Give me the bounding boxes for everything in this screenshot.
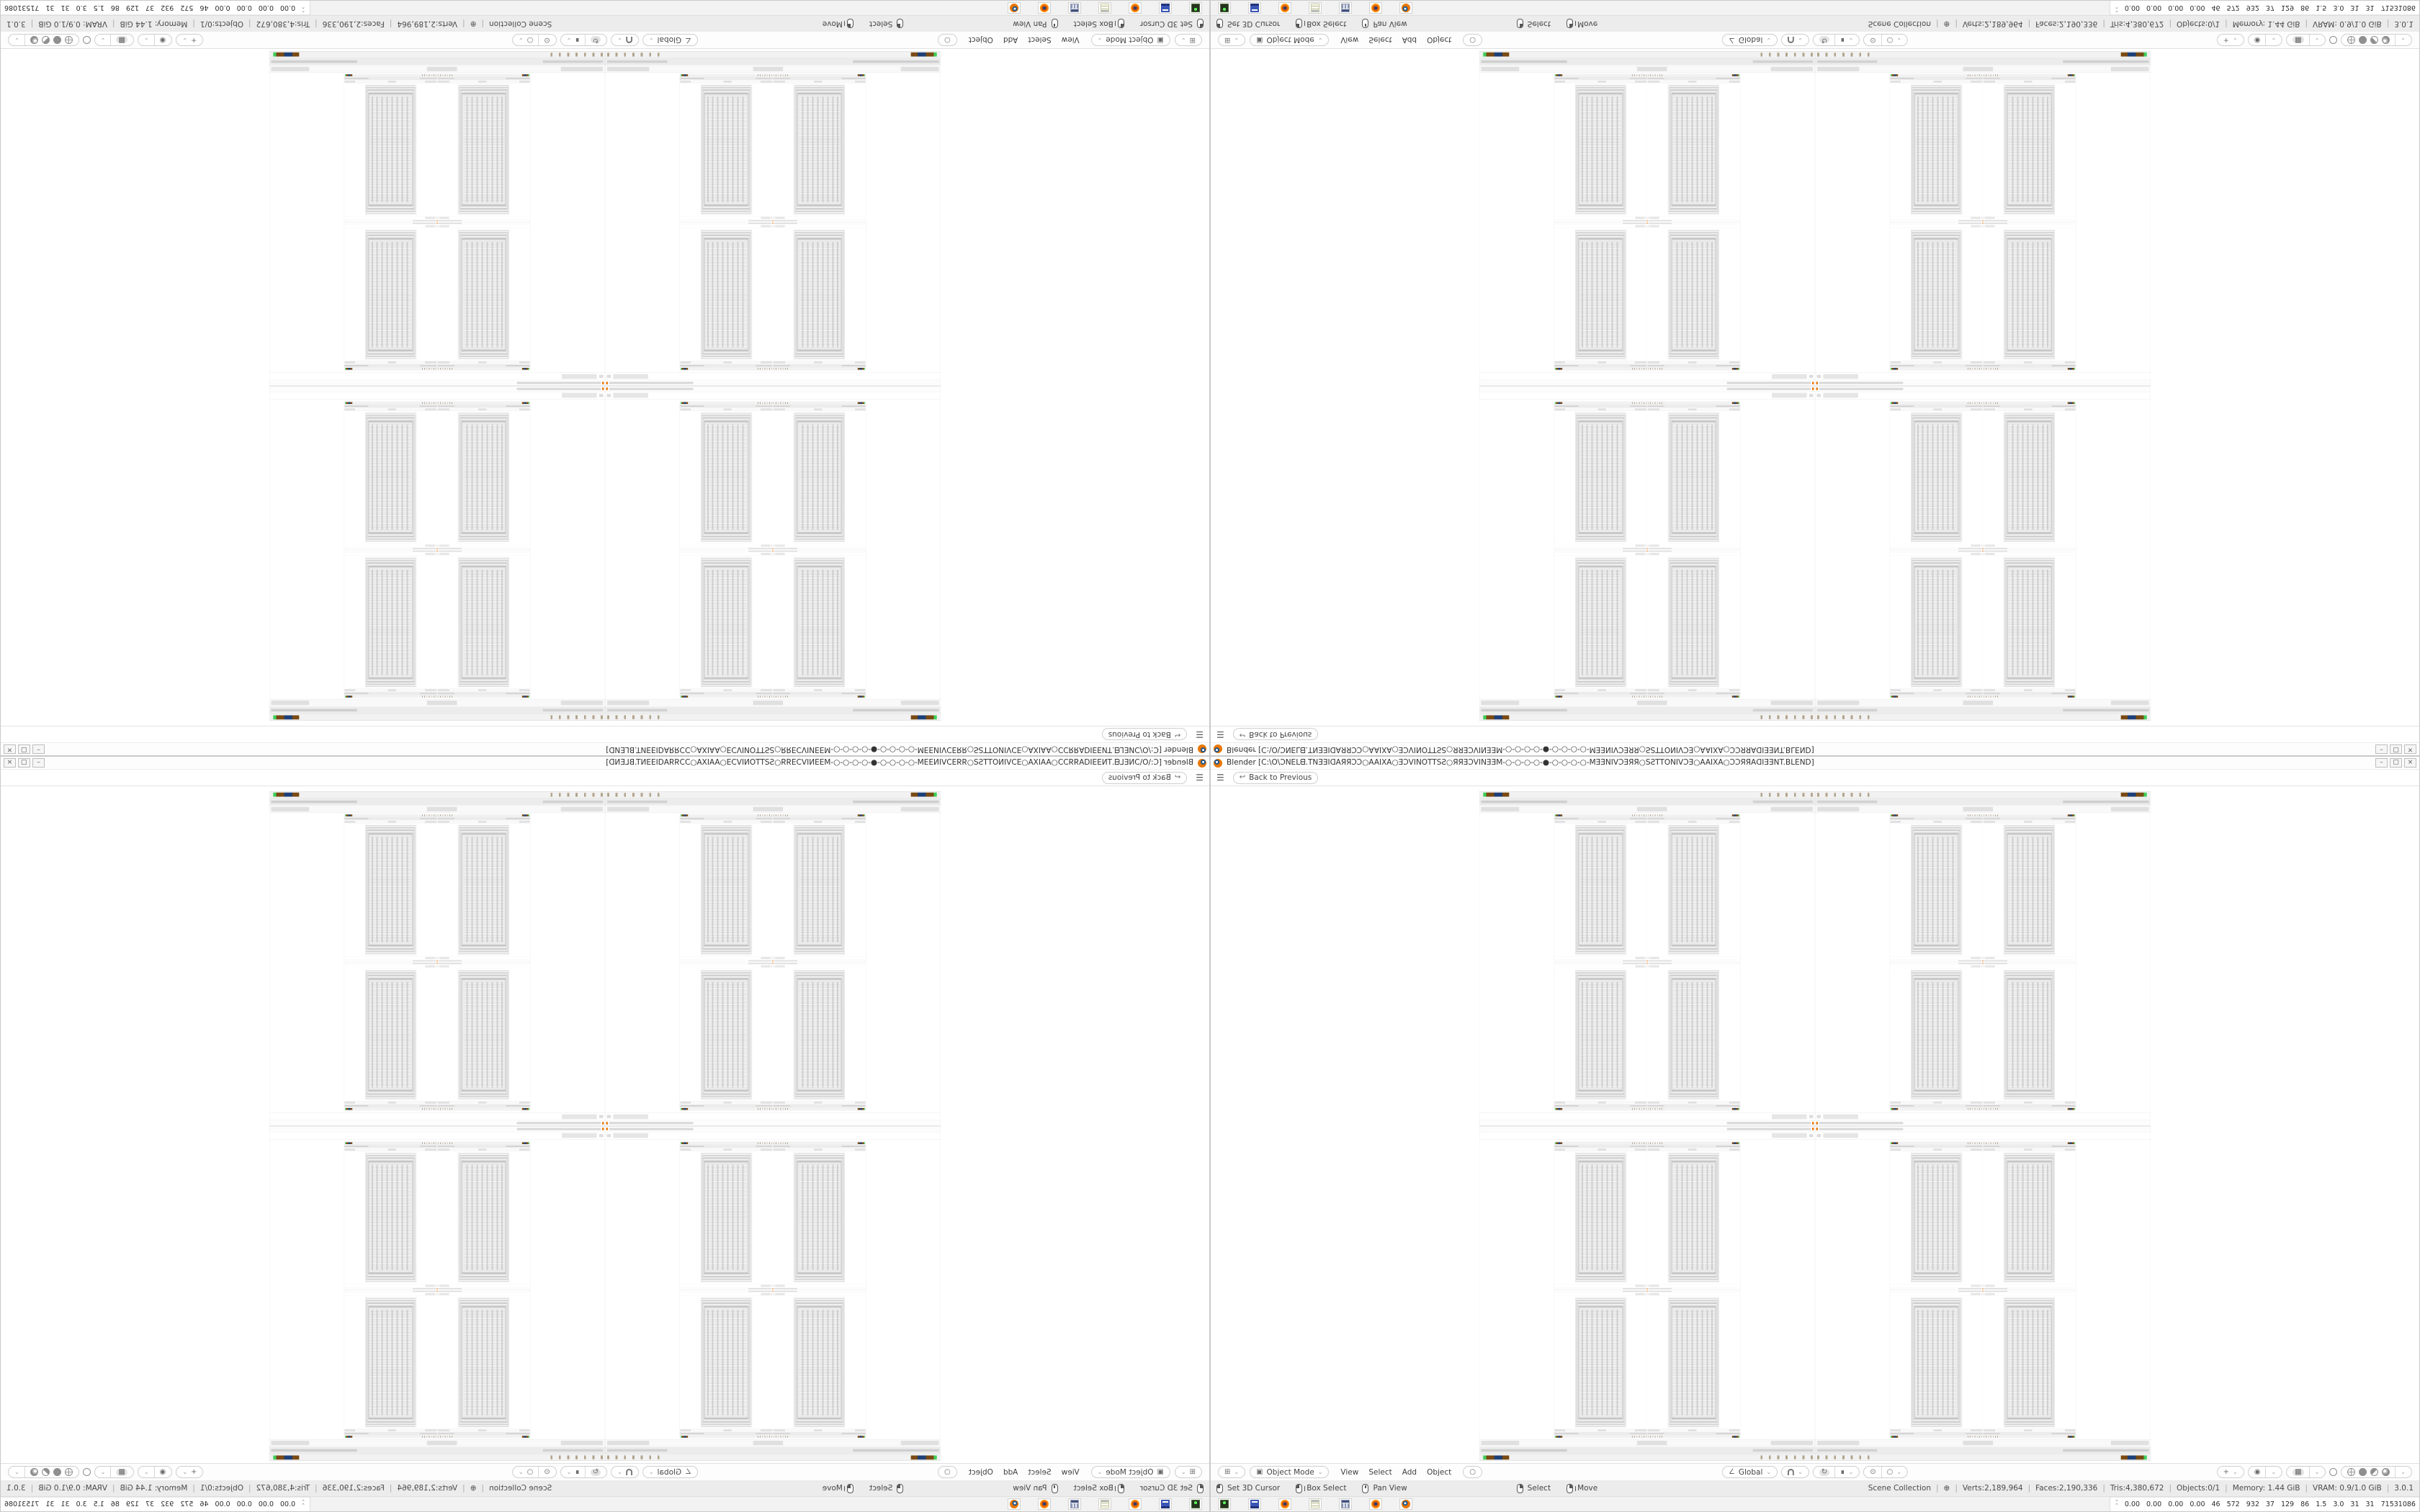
- nested-status-bar: [1479, 707, 1814, 714]
- menu-select[interactable]: Select: [1368, 36, 1391, 45]
- nested-screen: [1647, 402, 1740, 550]
- nested-title-bar: [1647, 960, 1740, 963]
- editor-type-button[interactable]: ⊞ ⌄: [1218, 34, 1245, 46]
- nested-viewport: [680, 556, 773, 688]
- shading-mode-group[interactable]: ⌄: [8, 34, 79, 46]
- viewport-image: [701, 1152, 753, 1283]
- menu-add[interactable]: Add: [1402, 36, 1417, 45]
- chevron-down-icon: ⌄: [144, 37, 149, 43]
- chevron-down-icon: ⌄: [2233, 1469, 2238, 1475]
- taskbar-icon-system-monitor[interactable]: [1189, 2, 1202, 14]
- chevron-down-icon: ⌄: [1798, 37, 1803, 43]
- shading-material-icon[interactable]: [42, 1468, 50, 1476]
- nested-screen: [773, 962, 866, 1110]
- nested-title-bar: [269, 380, 604, 386]
- scale-wrapper: [1554, 1290, 1647, 1439]
- nested-cell-tr: [1983, 962, 2076, 1110]
- overlays-toggle-button[interactable]: ◉ ⌄: [2248, 34, 2282, 46]
- mirror-wrapper: [773, 814, 866, 962]
- stat-value: 0.00: [2190, 1500, 2205, 1508]
- taskbar-icon-firefox[interactable]: [1129, 2, 1142, 14]
- xray-toggle-button[interactable]: ▩ ⌄: [2286, 34, 2326, 46]
- status-hint: Move: [1567, 19, 1597, 29]
- mode-dropdown[interactable]: ▣ Object Mode ⌄: [1250, 1466, 1329, 1478]
- taskbar-icon-commodore-64[interactable]: [1248, 2, 1261, 14]
- proportional-editing-button[interactable]: ⊙ ○ ⌄: [512, 1466, 557, 1478]
- rendered-preview-circle-icon[interactable]: [2329, 1468, 2337, 1476]
- viewport-header-center: ∠ Global ⌄ ⌄ ↻ ∎ ⌄ ⊙ ○: [1722, 34, 1908, 46]
- mouse-left-drag-icon: [1296, 1484, 1302, 1493]
- shading-mode-group[interactable]: ⌄: [8, 1466, 79, 1478]
- stat-value: 932: [2246, 1500, 2259, 1508]
- snap-target-button[interactable]: ⌄: [1781, 34, 1809, 46]
- stat-value: 71531086: [2381, 1500, 2416, 1508]
- nested-cell-tl: [437, 222, 530, 370]
- stat-value: 572: [2227, 1500, 2240, 1508]
- taskbar-icon-firefox[interactable]: [1369, 2, 1382, 14]
- nested-title-bar: [773, 960, 866, 963]
- scale-wrapper: [1647, 814, 1740, 962]
- snap-toggle-button[interactable]: ↻ ∎ ⌄: [560, 34, 607, 46]
- nested-top-bar: [1890, 544, 1983, 547]
- mirror-wrapper: [344, 1142, 437, 1290]
- gizmo-toggle-button[interactable]: + ⌄: [2217, 1466, 2244, 1478]
- nested-screen: [269, 1126, 605, 1461]
- viewport-image: [680, 402, 866, 698]
- nested-taskbar: [269, 714, 604, 720]
- restore-button[interactable]: ▢: [18, 758, 30, 768]
- menu-view[interactable]: View: [1062, 36, 1080, 45]
- viewport-image: [1668, 557, 1720, 688]
- shading-rendered-icon[interactable]: [2382, 36, 2390, 44]
- mode-dropdown[interactable]: ▣ Object Mode ⌄: [1091, 34, 1170, 46]
- mirror-wrapper: [680, 222, 773, 370]
- back-to-previous-button[interactable]: ↩ Back to Previous: [1102, 772, 1187, 784]
- gizmo-toggle-button[interactable]: + ⌄: [176, 1466, 203, 1478]
- transform-orientation-dropdown[interactable]: ∠ Global ⌄: [1722, 34, 1778, 46]
- snap-target-button[interactable]: ⌄: [1781, 1466, 1809, 1478]
- nested-status-bar: [344, 817, 437, 820]
- gizmo-toggle-button[interactable]: + ⌄: [2217, 34, 2244, 46]
- status-hint: Move: [823, 1484, 853, 1493]
- taskbar-icon-calculator[interactable]: [1068, 2, 1081, 14]
- transform-orientation-dropdown[interactable]: ∠ Global ⌄: [642, 34, 698, 46]
- taskbar-icon-notepad[interactable]: [1309, 2, 1322, 14]
- snap-target-button[interactable]: ⌄: [611, 34, 639, 46]
- blender-window: Blender [C:\O\ƆNEᒪᗺ.TNƎƎIᗡAЯЯƆƆ○AAIXA○ƎƆ…: [0, 756, 1210, 1512]
- scene-stat-item: 3.0.1: [2394, 1484, 2414, 1493]
- viewport-header-right: + ⌄ ◉ ⌄ ▩ ⌄: [2217, 1466, 2412, 1478]
- close-button[interactable]: ×: [2404, 758, 2416, 768]
- mirror-wrapper: [680, 73, 773, 222]
- shading-material-icon[interactable]: [2370, 1468, 2378, 1476]
- taskbar-icon-system-monitor[interactable]: [1189, 1498, 1202, 1510]
- viewport-image: [1575, 969, 1627, 1100]
- window-controls: – ▢ ×: [4, 758, 45, 768]
- viewport-image: [1668, 412, 1720, 543]
- mouse-right-drag-icon: [1567, 19, 1573, 29]
- chevron-down-icon: ⌄: [2271, 1469, 2276, 1475]
- scale-wrapper: [437, 1290, 530, 1439]
- nested-viewport: [437, 968, 530, 1101]
- snap-target-button[interactable]: ⌄: [611, 1466, 639, 1478]
- system-stats-widget: ⌃ ⌃ 0.000.000.000.004657293237129861.53.…: [2110, 1, 2419, 15]
- nested-taskbar: [1890, 367, 1983, 370]
- magnet-icon: [626, 37, 632, 43]
- editor-type-button[interactable]: ⊞ ⌄: [1218, 1466, 1245, 1478]
- viewport-image: [344, 814, 531, 1110]
- taskbar-icon-calculator[interactable]: [1339, 1498, 1352, 1510]
- mirror-wrapper: [437, 814, 530, 962]
- shading-solid-icon[interactable]: [2359, 36, 2367, 44]
- taskbar-icon-blender[interactable]: [1008, 2, 1021, 14]
- snap-pin-icon: ∎: [575, 37, 579, 44]
- nested-top-bar: [1815, 1112, 2150, 1120]
- system-monitor-icon: [1191, 4, 1200, 12]
- scale-wrapper: [1554, 402, 1647, 550]
- nested-status-bar: [437, 405, 530, 408]
- proportional-editing-button[interactable]: ⊙ ○ ⌄: [512, 34, 557, 46]
- nested-taskbar: [344, 1142, 437, 1145]
- nested-top-bar: [1647, 544, 1740, 547]
- nested-taskbar: [1647, 695, 1740, 698]
- nested-viewport: [1647, 968, 1740, 1101]
- viewport-image: [794, 229, 846, 360]
- menu-icon[interactable]: ☰: [1216, 773, 1224, 783]
- nested-viewport: [1890, 556, 1983, 688]
- menu-view[interactable]: View: [1340, 36, 1358, 45]
- menu-add[interactable]: Add: [1003, 1468, 1018, 1477]
- menu-select[interactable]: Select: [1368, 1468, 1391, 1477]
- restore-button[interactable]: ▢: [18, 744, 30, 754]
- back-to-previous-button[interactable]: ↩ Back to Previous: [1233, 729, 1318, 741]
- nested-top-bar: [437, 544, 530, 547]
- viewport-image: [2004, 229, 2056, 360]
- nested-status-bar: [605, 798, 940, 806]
- snap-toggle-button[interactable]: ↻ ∎ ⌄: [1813, 1466, 1860, 1478]
- scene-statistics: Scene Collection|⊕|Verts:2,189,964|Faces…: [6, 1484, 552, 1493]
- keymap-hints: Set 3D CursorBox SelectPan ViewSelectMov…: [823, 19, 1204, 29]
- shading-solid-icon[interactable]: [53, 36, 61, 44]
- tool-circle-button[interactable]: ○: [938, 1466, 957, 1478]
- overlays-toggle-button[interactable]: ◉ ⌄: [138, 1466, 172, 1478]
- nested-cell-tr: [773, 222, 866, 370]
- nested-viewport: [773, 1296, 866, 1428]
- stat-value: 37: [2266, 4, 2275, 12]
- transform-orientation-dropdown[interactable]: ∠ Global ⌄: [1722, 1466, 1778, 1478]
- scroll-up-icon[interactable]: ⌃ ⌃: [2115, 1500, 2119, 1508]
- taskbar-icon-calculator[interactable]: [1068, 1498, 1081, 1510]
- nested-status-bar: [1479, 58, 1814, 66]
- shading-wireframe-icon[interactable]: [65, 36, 73, 44]
- chevron-down-icon: ⌄: [1318, 37, 1323, 43]
- shading-rendered-icon[interactable]: [30, 36, 38, 44]
- divider: [154, 35, 155, 45]
- scale-wrapper: [773, 73, 866, 222]
- notepad-icon: [1311, 1500, 1319, 1508]
- shading-rendered-icon[interactable]: [2382, 1468, 2390, 1476]
- menu-icon[interactable]: ☰: [1216, 729, 1224, 739]
- separator: |: [2169, 19, 2172, 28]
- blender-logo-icon: [1214, 745, 1222, 754]
- mouse-left-drag-icon: [1118, 1484, 1124, 1493]
- nested-screen: [773, 814, 866, 962]
- taskbar-icon-notepad[interactable]: [1309, 1498, 1322, 1510]
- viewport-image: [1911, 84, 1963, 215]
- menu-object[interactable]: Object: [969, 1468, 993, 1477]
- xray-icon: ▩: [2293, 1469, 2303, 1476]
- rendered-preview-circle-icon[interactable]: [83, 1468, 91, 1476]
- taskbar-icon-notepad[interactable]: [1098, 1498, 1111, 1510]
- tool-circle-button[interactable]: ○: [1463, 1466, 1482, 1478]
- snap-rotate-icon: ↻: [591, 37, 601, 44]
- taskbar-icon-firefox[interactable]: [1278, 2, 1291, 14]
- nested-status-bar: [605, 1447, 940, 1454]
- mirror-wrapper: [1647, 73, 1740, 222]
- separator: |: [1936, 1484, 1939, 1493]
- nested-viewport-header: [1815, 1439, 2150, 1447]
- status-hint-label: Select: [869, 1484, 892, 1493]
- minimize-button[interactable]: –: [2375, 758, 2388, 768]
- commodore-64-icon: [1161, 1500, 1170, 1508]
- mouse-left-icon: [1197, 19, 1204, 29]
- nested-viewport: [773, 824, 866, 956]
- mirror-wrapper: [605, 51, 941, 386]
- xray-toggle-button[interactable]: ▩ ⌄: [94, 1466, 134, 1478]
- taskbar-icon-blender[interactable]: [1399, 2, 1412, 14]
- taskbar-icon-calculator[interactable]: [1339, 2, 1352, 14]
- shading-wireframe-icon[interactable]: [2347, 36, 2355, 44]
- stat-value: 0.00: [2125, 1500, 2140, 1508]
- close-button[interactable]: ×: [4, 758, 16, 768]
- scale-wrapper: [1647, 550, 1740, 698]
- scroll-up-icon[interactable]: ⌃ ⌃: [301, 4, 305, 12]
- mode-dropdown[interactable]: ▣ Object Mode ⌄: [1091, 1466, 1170, 1478]
- viewport-image: [365, 969, 417, 1100]
- nested-top-bar: [1647, 1284, 1740, 1287]
- scale-wrapper: [1890, 962, 1983, 1110]
- back-to-previous-button[interactable]: ↩ Back to Previous: [1102, 729, 1187, 741]
- viewport-3d[interactable]: [1, 786, 1209, 1463]
- nested-top-bar: [680, 544, 773, 547]
- nested-top-bar: [1554, 216, 1647, 220]
- mirror-wrapper: [605, 386, 941, 721]
- shading-mode-group[interactable]: ⌄: [2341, 34, 2412, 46]
- chevron-down-icon: ⌄: [1181, 37, 1186, 43]
- menu-select[interactable]: Select: [1028, 36, 1051, 45]
- viewport-3d[interactable]: [1, 49, 1209, 726]
- nested-screen: [437, 402, 530, 550]
- taskbar-icon-system-monitor[interactable]: [1218, 1498, 1231, 1510]
- shading-wireframe-icon[interactable]: [2347, 1468, 2355, 1476]
- mouse-middle-icon: [1362, 1484, 1368, 1493]
- shading-rendered-icon[interactable]: [30, 1468, 38, 1476]
- nested-viewport: [605, 1140, 940, 1439]
- stats-values: 0.000.000.000.004657293237129861.53.0313…: [4, 4, 295, 12]
- back-to-previous-button[interactable]: ↩ Back to Previous: [1233, 772, 1318, 784]
- nested-top-bar: [1983, 956, 2076, 960]
- menu-object[interactable]: Object: [969, 36, 993, 45]
- mirror-wrapper: [1647, 1290, 1740, 1439]
- viewport-3d[interactable]: [1211, 786, 2419, 1463]
- taskbar-icon-firefox[interactable]: [1038, 1498, 1051, 1510]
- editor-type-button[interactable]: ⊞ ⌄: [1175, 34, 1202, 46]
- taskbar-icon-firefox[interactable]: [1129, 1498, 1142, 1510]
- viewport-image: [701, 412, 753, 543]
- taskbar-icon-commodore-64[interactable]: [1159, 1498, 1172, 1510]
- stat-value: 0.00: [237, 1500, 252, 1508]
- nested-status-bar: [269, 798, 604, 806]
- nested-status-bar: [773, 1145, 866, 1148]
- editor-type-icon: ⊞: [1224, 1469, 1230, 1476]
- menu-object[interactable]: Object: [1427, 36, 1451, 45]
- taskbar-icon-firefox[interactable]: [1038, 2, 1051, 14]
- snap-toggle-button[interactable]: ↻ ∎ ⌄: [560, 1466, 607, 1478]
- tool-circle-button[interactable]: ○: [1463, 34, 1482, 46]
- mode-dropdown[interactable]: ▣ Object Mode ⌄: [1250, 34, 1329, 46]
- nested-cell-tr: [344, 402, 437, 550]
- mirror-wrapper: [680, 1142, 773, 1290]
- minimize-button[interactable]: –: [32, 744, 45, 754]
- rendered-preview-circle-icon[interactable]: [83, 36, 91, 44]
- taskbar-icon-firefox[interactable]: [1278, 1498, 1291, 1510]
- chevron-down-icon: ⌄: [182, 1469, 187, 1475]
- minimize-button[interactable]: –: [32, 758, 45, 768]
- restore-button[interactable]: ▢: [2390, 758, 2402, 768]
- restore-button[interactable]: ▢: [2390, 744, 2402, 754]
- shading-material-icon[interactable]: [2370, 36, 2378, 44]
- scroll-up-icon[interactable]: ⌃ ⌃: [2115, 4, 2119, 12]
- menu-add[interactable]: Add: [1402, 1468, 1417, 1477]
- editor-type-button[interactable]: ⊞ ⌄: [1175, 1466, 1202, 1478]
- xray-toggle-button[interactable]: ▩ ⌄: [2286, 1466, 2326, 1478]
- mirror-wrapper: [437, 402, 530, 550]
- nested-screen: [680, 550, 773, 698]
- menu-add[interactable]: Add: [1003, 36, 1018, 45]
- viewport-image: [2004, 84, 2056, 215]
- nested-top-bar: [773, 544, 866, 547]
- close-button[interactable]: ×: [4, 744, 16, 754]
- scale-wrapper: [1479, 51, 1815, 386]
- nested-viewport-header: [269, 1439, 604, 1447]
- taskbar-icon-firefox[interactable]: [1369, 1498, 1382, 1510]
- mirror-wrapper: [773, 402, 866, 550]
- stat-value: 0.00: [2125, 4, 2140, 12]
- menu-view[interactable]: View: [1340, 1468, 1358, 1477]
- menu-object[interactable]: Object: [1427, 1468, 1451, 1477]
- nested-cell-bl: [437, 1290, 530, 1439]
- minimize-button[interactable]: –: [2375, 744, 2388, 754]
- nested-screen: [1983, 814, 2076, 962]
- nested-screen: [1647, 1142, 1740, 1290]
- shading-material-icon[interactable]: [42, 36, 50, 44]
- nested-status-bar: [1983, 817, 2076, 820]
- menu-select[interactable]: Select: [1028, 1468, 1051, 1477]
- nested-top-bar: [680, 956, 773, 960]
- nested-viewport-header: [605, 805, 940, 813]
- proportional-editing-button[interactable]: ⊙ ○ ⌄: [1863, 1466, 1908, 1478]
- taskbar-icon-system-monitor[interactable]: [1218, 2, 1231, 14]
- system-stats-widget: ⌃ ⌃ 0.000.000.000.004657293237129861.53.…: [1, 1, 310, 15]
- menu-icon[interactable]: ☰: [1196, 729, 1204, 739]
- nested-status-bar: [269, 707, 604, 714]
- chevron-down-icon: ⌄: [1098, 1469, 1103, 1475]
- shading-solid-icon[interactable]: [53, 1468, 61, 1476]
- status-hint: Box Select: [1074, 19, 1124, 29]
- nested-cell-tr: [269, 791, 605, 1126]
- taskbar-icon-notepad[interactable]: [1098, 2, 1111, 14]
- viewport-header-right: + ⌄ ◉ ⌄ ▩ ⌄: [2217, 34, 2412, 46]
- taskbar-icon-blender[interactable]: [1399, 1498, 1412, 1510]
- nested-status-bar: [437, 77, 530, 80]
- menu-view[interactable]: View: [1062, 1468, 1080, 1477]
- mirror-wrapper: [1983, 73, 2076, 222]
- taskbar-icon-commodore-64[interactable]: [1159, 2, 1172, 14]
- scene-stat-item: VRAM: 0.9/1.0 GiB: [2313, 1484, 2382, 1493]
- nested-status-bar: [344, 1145, 437, 1148]
- transform-orientation-dropdown[interactable]: ∠ Global ⌄: [642, 1466, 698, 1478]
- taskbar-icon-blender[interactable]: [1008, 1498, 1021, 1510]
- status-hint: Pan View: [1013, 19, 1057, 29]
- keymap-hints: Set 3D CursorBox SelectPan ViewSelectMov…: [823, 1484, 1204, 1493]
- scale-wrapper: [1479, 1126, 1815, 1461]
- orientation-axis-icon: ∠: [685, 1469, 691, 1476]
- xray-icon: ▩: [2293, 37, 2303, 44]
- nested-taskbar: [437, 814, 530, 817]
- gizmo-toggle-button[interactable]: + ⌄: [176, 34, 203, 46]
- xray-toggle-button[interactable]: ▩ ⌄: [94, 34, 134, 46]
- shading-solid-icon[interactable]: [2359, 1468, 2367, 1476]
- nested-screen: [1479, 386, 1815, 721]
- mirror-wrapper: [1554, 814, 1647, 962]
- shading-wireframe-icon[interactable]: [65, 1468, 73, 1476]
- overlays-toggle-button[interactable]: ◉ ⌄: [138, 34, 172, 46]
- nested-taskbar: [1554, 695, 1647, 698]
- chevron-down-icon: ⌄: [1098, 37, 1103, 43]
- nested-taskbar: [1983, 814, 2076, 817]
- stat-value: 0.00: [237, 4, 252, 12]
- nested-top-bar: [1815, 1132, 2150, 1139]
- mouse-left-drag-icon: [1296, 19, 1302, 29]
- mouse-right-drag-icon: [1567, 1484, 1573, 1493]
- nested-taskbar: [1647, 402, 1740, 405]
- taskbar-icon-commodore-64[interactable]: [1248, 1498, 1261, 1510]
- menu-icon[interactable]: ☰: [1196, 773, 1204, 783]
- nested-viewport: [1983, 84, 2076, 216]
- nested-viewport: [344, 1296, 437, 1428]
- viewport-3d[interactable]: [1211, 49, 2419, 726]
- scroll-up-icon[interactable]: ⌃ ⌃: [301, 1500, 305, 1508]
- mirror-wrapper: [1479, 386, 1815, 721]
- tool-circle-button[interactable]: ○: [938, 34, 957, 46]
- shading-mode-group[interactable]: ⌄: [2341, 1466, 2412, 1478]
- proportional-editing-button[interactable]: ⊙ ○ ⌄: [1863, 34, 1908, 46]
- overlays-toggle-button[interactable]: ◉ ⌄: [2248, 1466, 2282, 1478]
- nested-cell-tl: [680, 1142, 773, 1290]
- close-button[interactable]: ×: [2404, 744, 2416, 754]
- nested-title-bar: [773, 220, 866, 222]
- nested-cell-tr: [1815, 386, 2151, 721]
- nested-taskbar: [1479, 791, 1814, 798]
- nested-viewport: [1647, 84, 1740, 216]
- scene-stat-item: Tris:4,380,672: [256, 19, 310, 28]
- nested-taskbar: [437, 402, 530, 405]
- rendered-preview-circle-icon[interactable]: [2329, 36, 2337, 44]
- proportional-icon: ⊙: [1870, 1469, 1875, 1476]
- snap-toggle-button[interactable]: ↻ ∎ ⌄: [1813, 34, 1860, 46]
- nested-top-bar: [680, 216, 773, 220]
- nested-taskbar: [1890, 1107, 1983, 1110]
